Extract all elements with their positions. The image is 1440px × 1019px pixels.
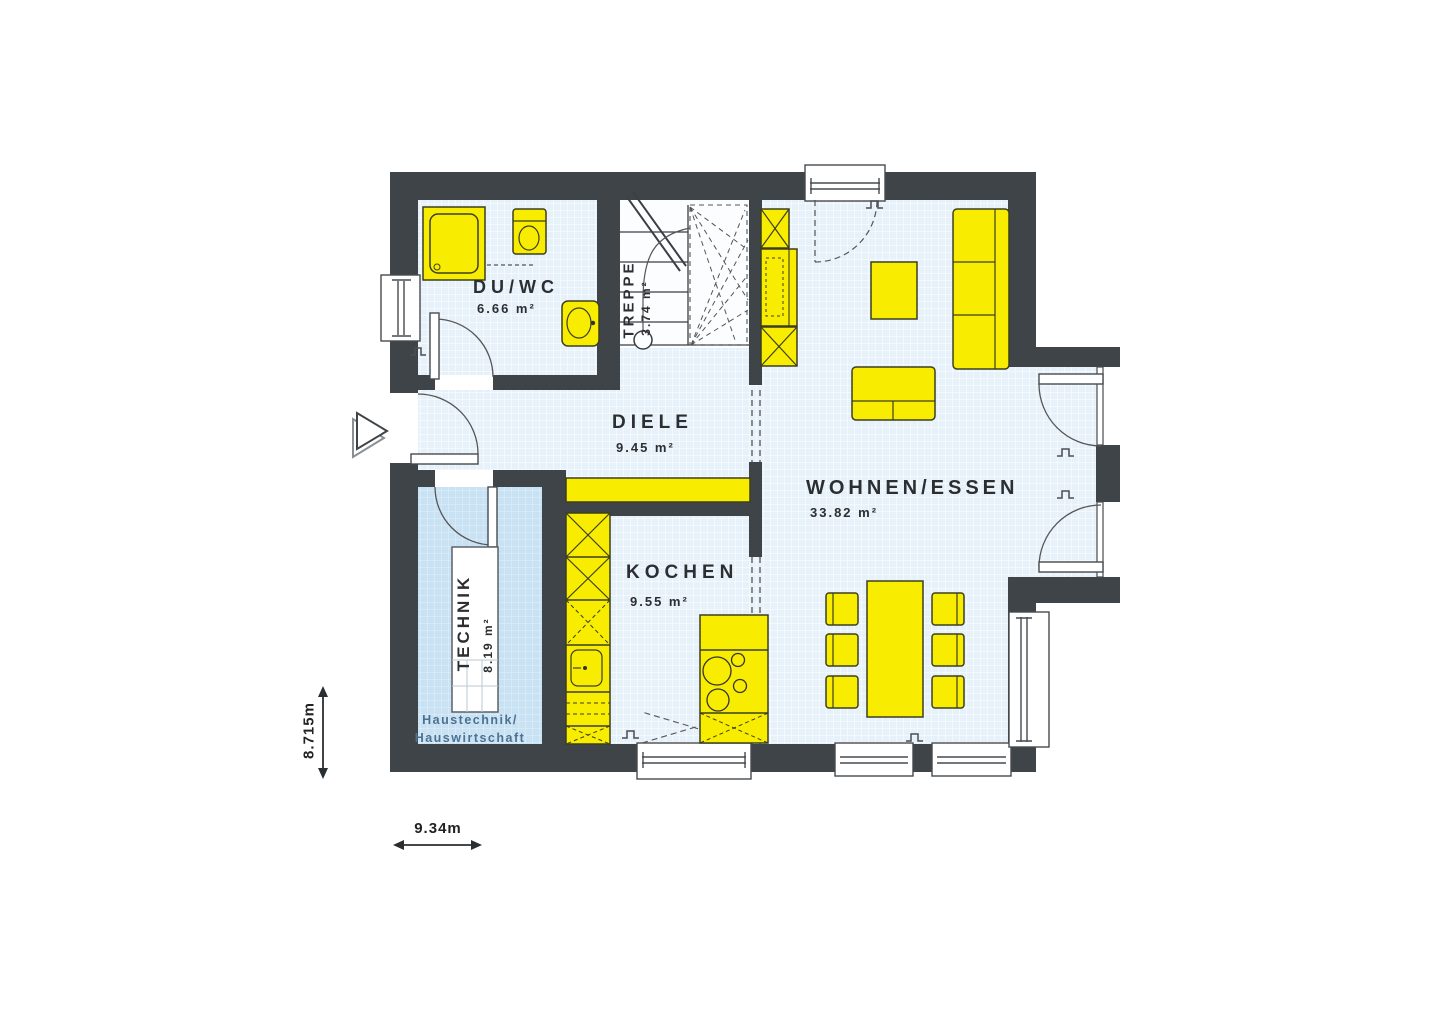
wall-step-top (1008, 347, 1120, 367)
entrance-opening (390, 393, 418, 463)
bathroom-sink (562, 301, 599, 346)
technik-door-leaf (488, 487, 497, 547)
wall-step-bottom (1008, 577, 1120, 603)
hvac-unit (452, 547, 498, 712)
wall-duwc-bottom-b (493, 375, 604, 390)
stove-counter (700, 615, 768, 743)
wall-technik-top-a (418, 470, 435, 487)
window-duwc-left (381, 275, 420, 341)
floor-plan-canvas (0, 0, 1440, 1019)
duwc-door-leaf (430, 313, 439, 379)
sofa-small (852, 367, 935, 420)
duwc-opening (435, 375, 493, 390)
entrance-door-leaf (411, 454, 478, 464)
technik-opening (435, 470, 493, 487)
wall-stairs-right (749, 195, 762, 385)
wall-right-upper (1008, 172, 1036, 367)
entrance-arrow (353, 413, 387, 457)
terrace-door-2-leaf (1039, 562, 1103, 572)
kitchen-counter-left (566, 513, 610, 744)
window-living-top (805, 165, 885, 201)
stairs-floor (620, 200, 749, 348)
terrace-door-1-leaf (1039, 374, 1103, 384)
window-living-bottom-2 (932, 743, 1011, 776)
wall-left (390, 172, 418, 772)
toilet (513, 209, 546, 254)
wall-duwc-right (597, 172, 620, 390)
wall-technik-top-b (493, 470, 545, 487)
window-living-bottom-1 (835, 743, 913, 776)
coffee-table (871, 262, 917, 319)
sideboard (566, 478, 750, 502)
window-kitchen-bottom (637, 743, 751, 779)
dining-table (867, 581, 923, 717)
stair-post (634, 331, 652, 349)
wall-pier (1096, 445, 1120, 502)
window-right-bottom (1009, 612, 1049, 747)
wall-top (390, 172, 1036, 200)
floor-plan-page: DU/WC 6.66 m² TREPPE 3.74 m² DIELE 9.45 … (0, 0, 1440, 1019)
sofa-large (953, 209, 1009, 369)
